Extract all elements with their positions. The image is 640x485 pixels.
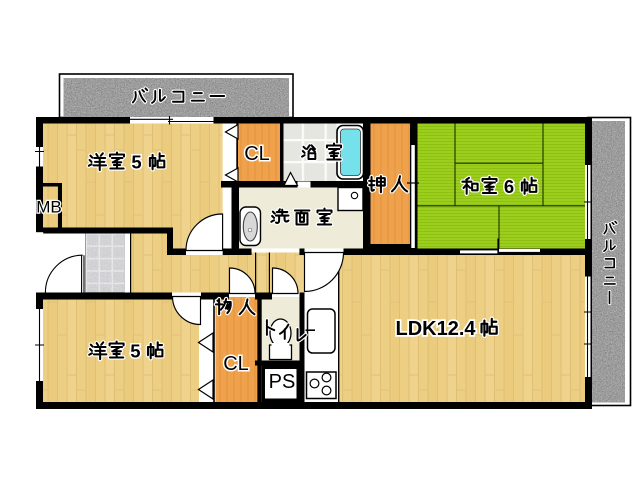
svg-text:5: 5 bbox=[130, 341, 140, 362]
svg-text:MB: MB bbox=[36, 198, 62, 217]
svg-text:5: 5 bbox=[131, 152, 141, 173]
svg-text:6: 6 bbox=[504, 176, 514, 197]
svg-text:LDK12.4: LDK12.4 bbox=[395, 318, 476, 340]
svg-text:CL: CL bbox=[244, 143, 270, 165]
svg-text:CL: CL bbox=[223, 353, 249, 375]
svg-text:PS: PS bbox=[269, 371, 296, 393]
